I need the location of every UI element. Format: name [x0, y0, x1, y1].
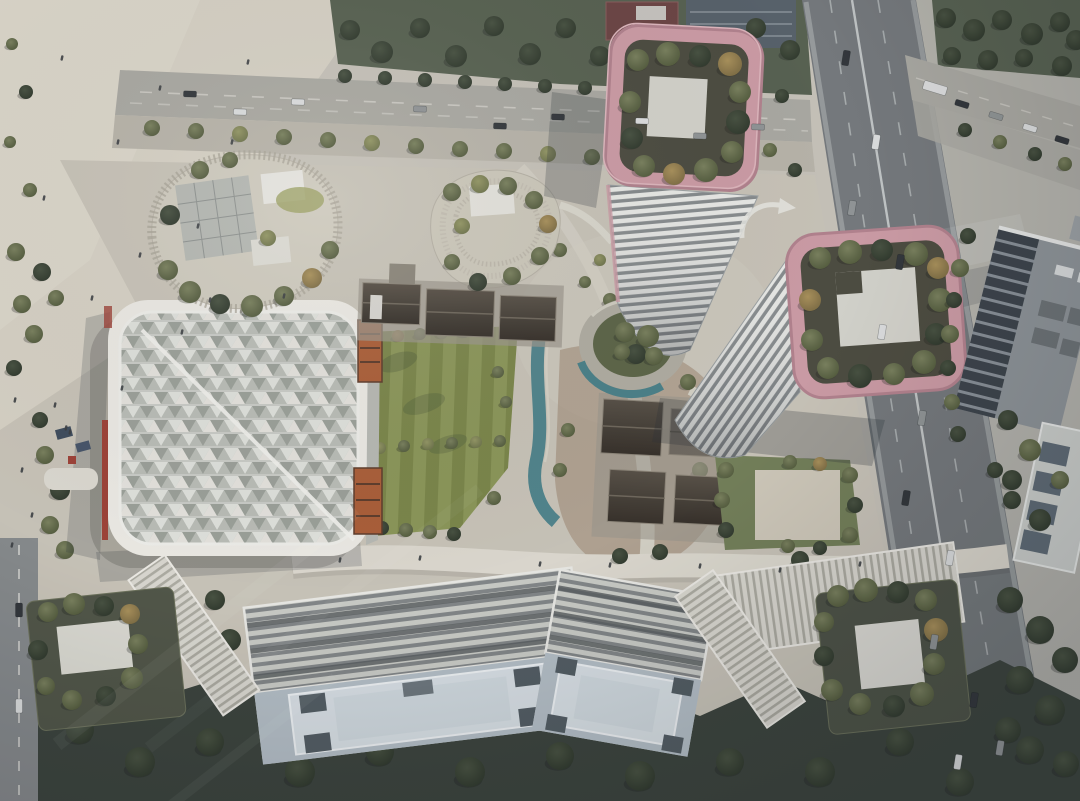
vignette-overlay — [0, 0, 1080, 801]
rendering-canvas — [0, 0, 1080, 801]
aerial-site-rendering — [0, 0, 1080, 801]
